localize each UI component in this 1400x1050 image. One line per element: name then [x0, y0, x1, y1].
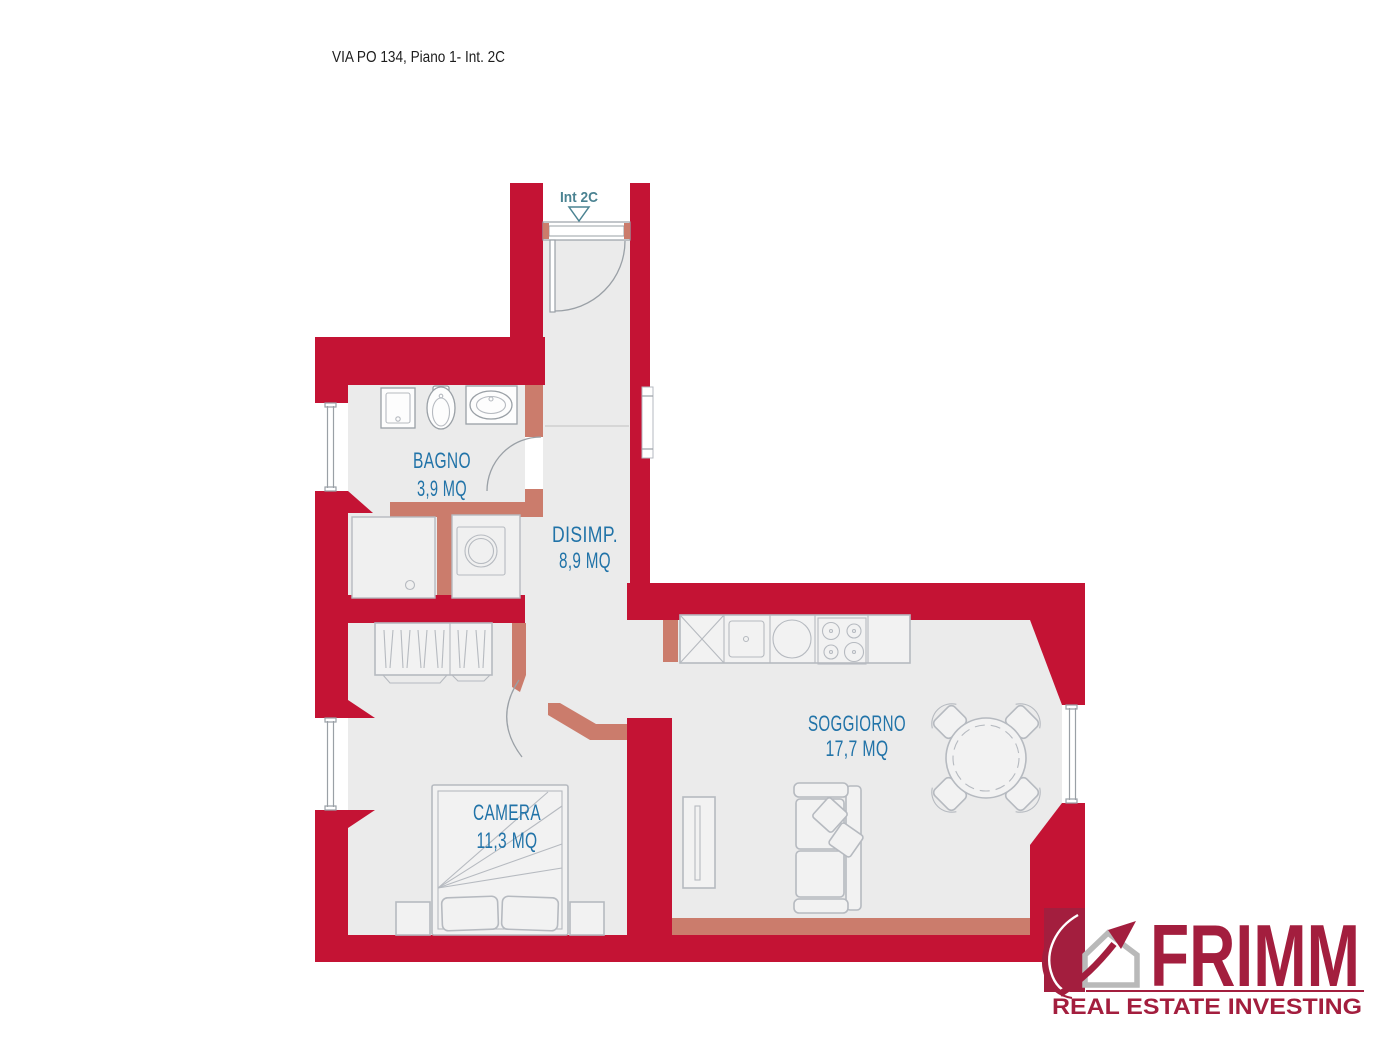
room-label-disimpegno: DISIMP.	[552, 522, 618, 547]
entrance-marker: Int 2C	[560, 189, 598, 221]
room-label-soggiorno: SOGGIORNO	[808, 711, 906, 736]
bottom-wall	[315, 935, 1085, 962]
wardrobe	[375, 623, 492, 683]
kitchen-counter	[680, 615, 910, 664]
hall-right-wall	[630, 183, 650, 387]
entrance-triangle-icon	[569, 207, 589, 221]
floorplan-svg: VIA PO 134, Piano 1- Int. 2C	[0, 0, 1400, 1050]
left-wall-upper	[315, 385, 348, 403]
sink-counter	[466, 386, 517, 424]
floorplan-page: VIA PO 134, Piano 1- Int. 2C	[0, 0, 1400, 1050]
livingroom-window	[1062, 705, 1085, 803]
nightstand-left	[396, 902, 430, 935]
agency-logo: FRIMM REAL ESTATE INVESTING	[1043, 906, 1364, 1019]
table-top	[946, 718, 1026, 798]
logo-house-icon	[1085, 933, 1137, 985]
pillow-left	[441, 896, 498, 931]
bathroom-window	[315, 403, 348, 491]
entrance-jamb-right	[624, 223, 630, 239]
nightstand-right	[570, 902, 604, 935]
sofa-armrest-top	[794, 783, 848, 797]
sofa	[794, 783, 864, 913]
logo-tagline-text: REAL ESTATE INVESTING	[1052, 994, 1362, 1019]
kitchen-stub-partition	[663, 620, 678, 662]
room-area-bagno: 3,9 MQ	[417, 476, 467, 501]
entrance-label: Int 2C	[560, 189, 598, 206]
hall-right-wall-thin	[630, 387, 642, 458]
pillow-right	[501, 896, 558, 931]
bathroom-top-wall	[315, 337, 545, 385]
bath-door-jamb-upper	[525, 385, 543, 437]
hall-left-wall	[510, 183, 543, 340]
washing-machine	[452, 515, 520, 598]
bidet	[427, 386, 455, 429]
entrance-jamb-left	[543, 223, 549, 239]
radiator	[683, 797, 715, 888]
bedroom-top-wall	[315, 595, 525, 623]
sofa-cushion-2	[796, 851, 844, 897]
room-area-soggiorno: 17,7 MQ	[826, 736, 889, 761]
room-area-disimpegno: 8,9 MQ	[559, 548, 611, 573]
closet-divider-partition	[437, 517, 452, 598]
logo-divider-line	[1086, 990, 1364, 992]
bathroom-fixtures	[381, 386, 517, 429]
room-label-bagno: BAGNO	[413, 448, 471, 473]
sofa-armrest-bottom	[794, 899, 848, 913]
bedroom-door-jamb	[512, 623, 526, 675]
bedroom-window	[315, 718, 348, 810]
plan-title: VIA PO 134, Piano 1- Int. 2C	[332, 49, 505, 66]
bedroom-livingroom-wall	[627, 718, 672, 940]
hall-niche-window	[642, 387, 653, 458]
washbasin	[381, 388, 415, 428]
closet-unit	[352, 517, 435, 598]
room-area-camera: 11,3 MQ	[477, 828, 538, 853]
room-label-camera: CAMERA	[473, 800, 541, 825]
